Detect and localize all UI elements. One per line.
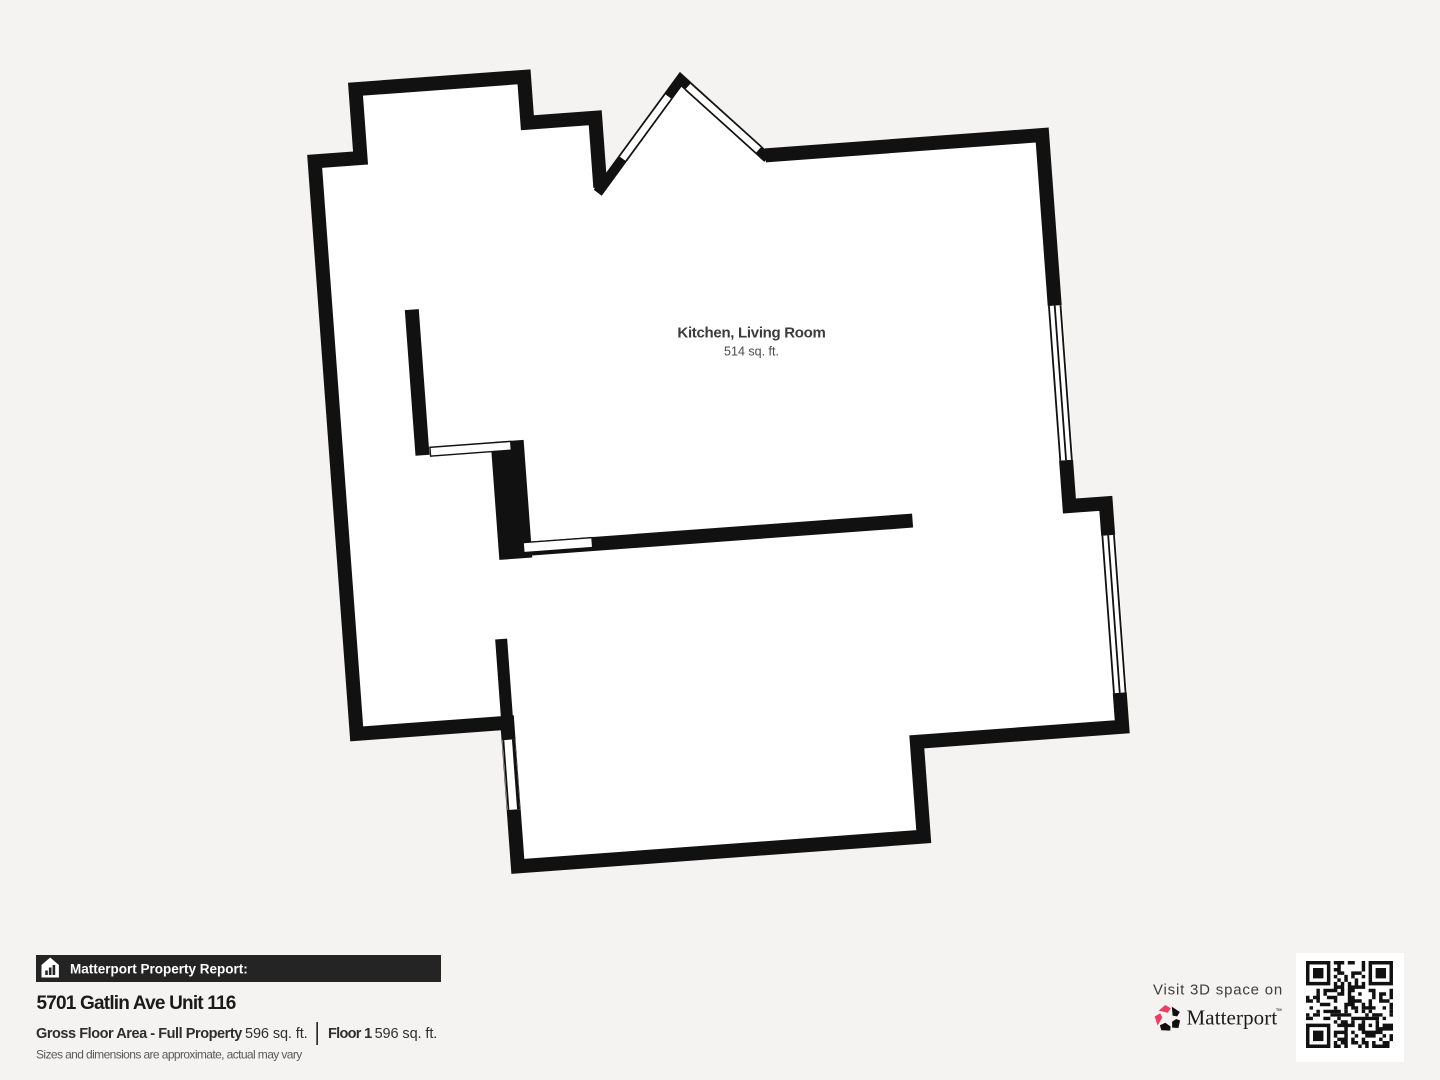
svg-text:5701 Gatlin Ave Unit 116: 5701 Gatlin Ave Unit 116 (37, 993, 236, 1014)
svg-text:Sizes and dimensions are appro: Sizes and dimensions are approximate, ac… (36, 1048, 302, 1062)
svg-text:Matterport: Matterport (1187, 1006, 1278, 1030)
svg-text:Gross Floor Area - Full Proper: Gross Floor Area - Full Property (36, 1026, 242, 1042)
svg-text:™: ™ (1276, 1008, 1283, 1015)
svg-text:596 sq. ft.: 596 sq. ft. (375, 1026, 438, 1042)
svg-text:Floor 1: Floor 1 (328, 1026, 372, 1042)
svg-text:Visit 3D space on: Visit 3D space on (1153, 982, 1283, 999)
svg-text:Matterport Property Report:: Matterport Property Report: (70, 962, 248, 977)
svg-text:514 sq. ft.: 514 sq. ft. (724, 345, 779, 359)
svg-text:Kitchen, Living Room: Kitchen, Living Room (677, 325, 825, 342)
svg-text:596 sq. ft.: 596 sq. ft. (245, 1026, 308, 1042)
